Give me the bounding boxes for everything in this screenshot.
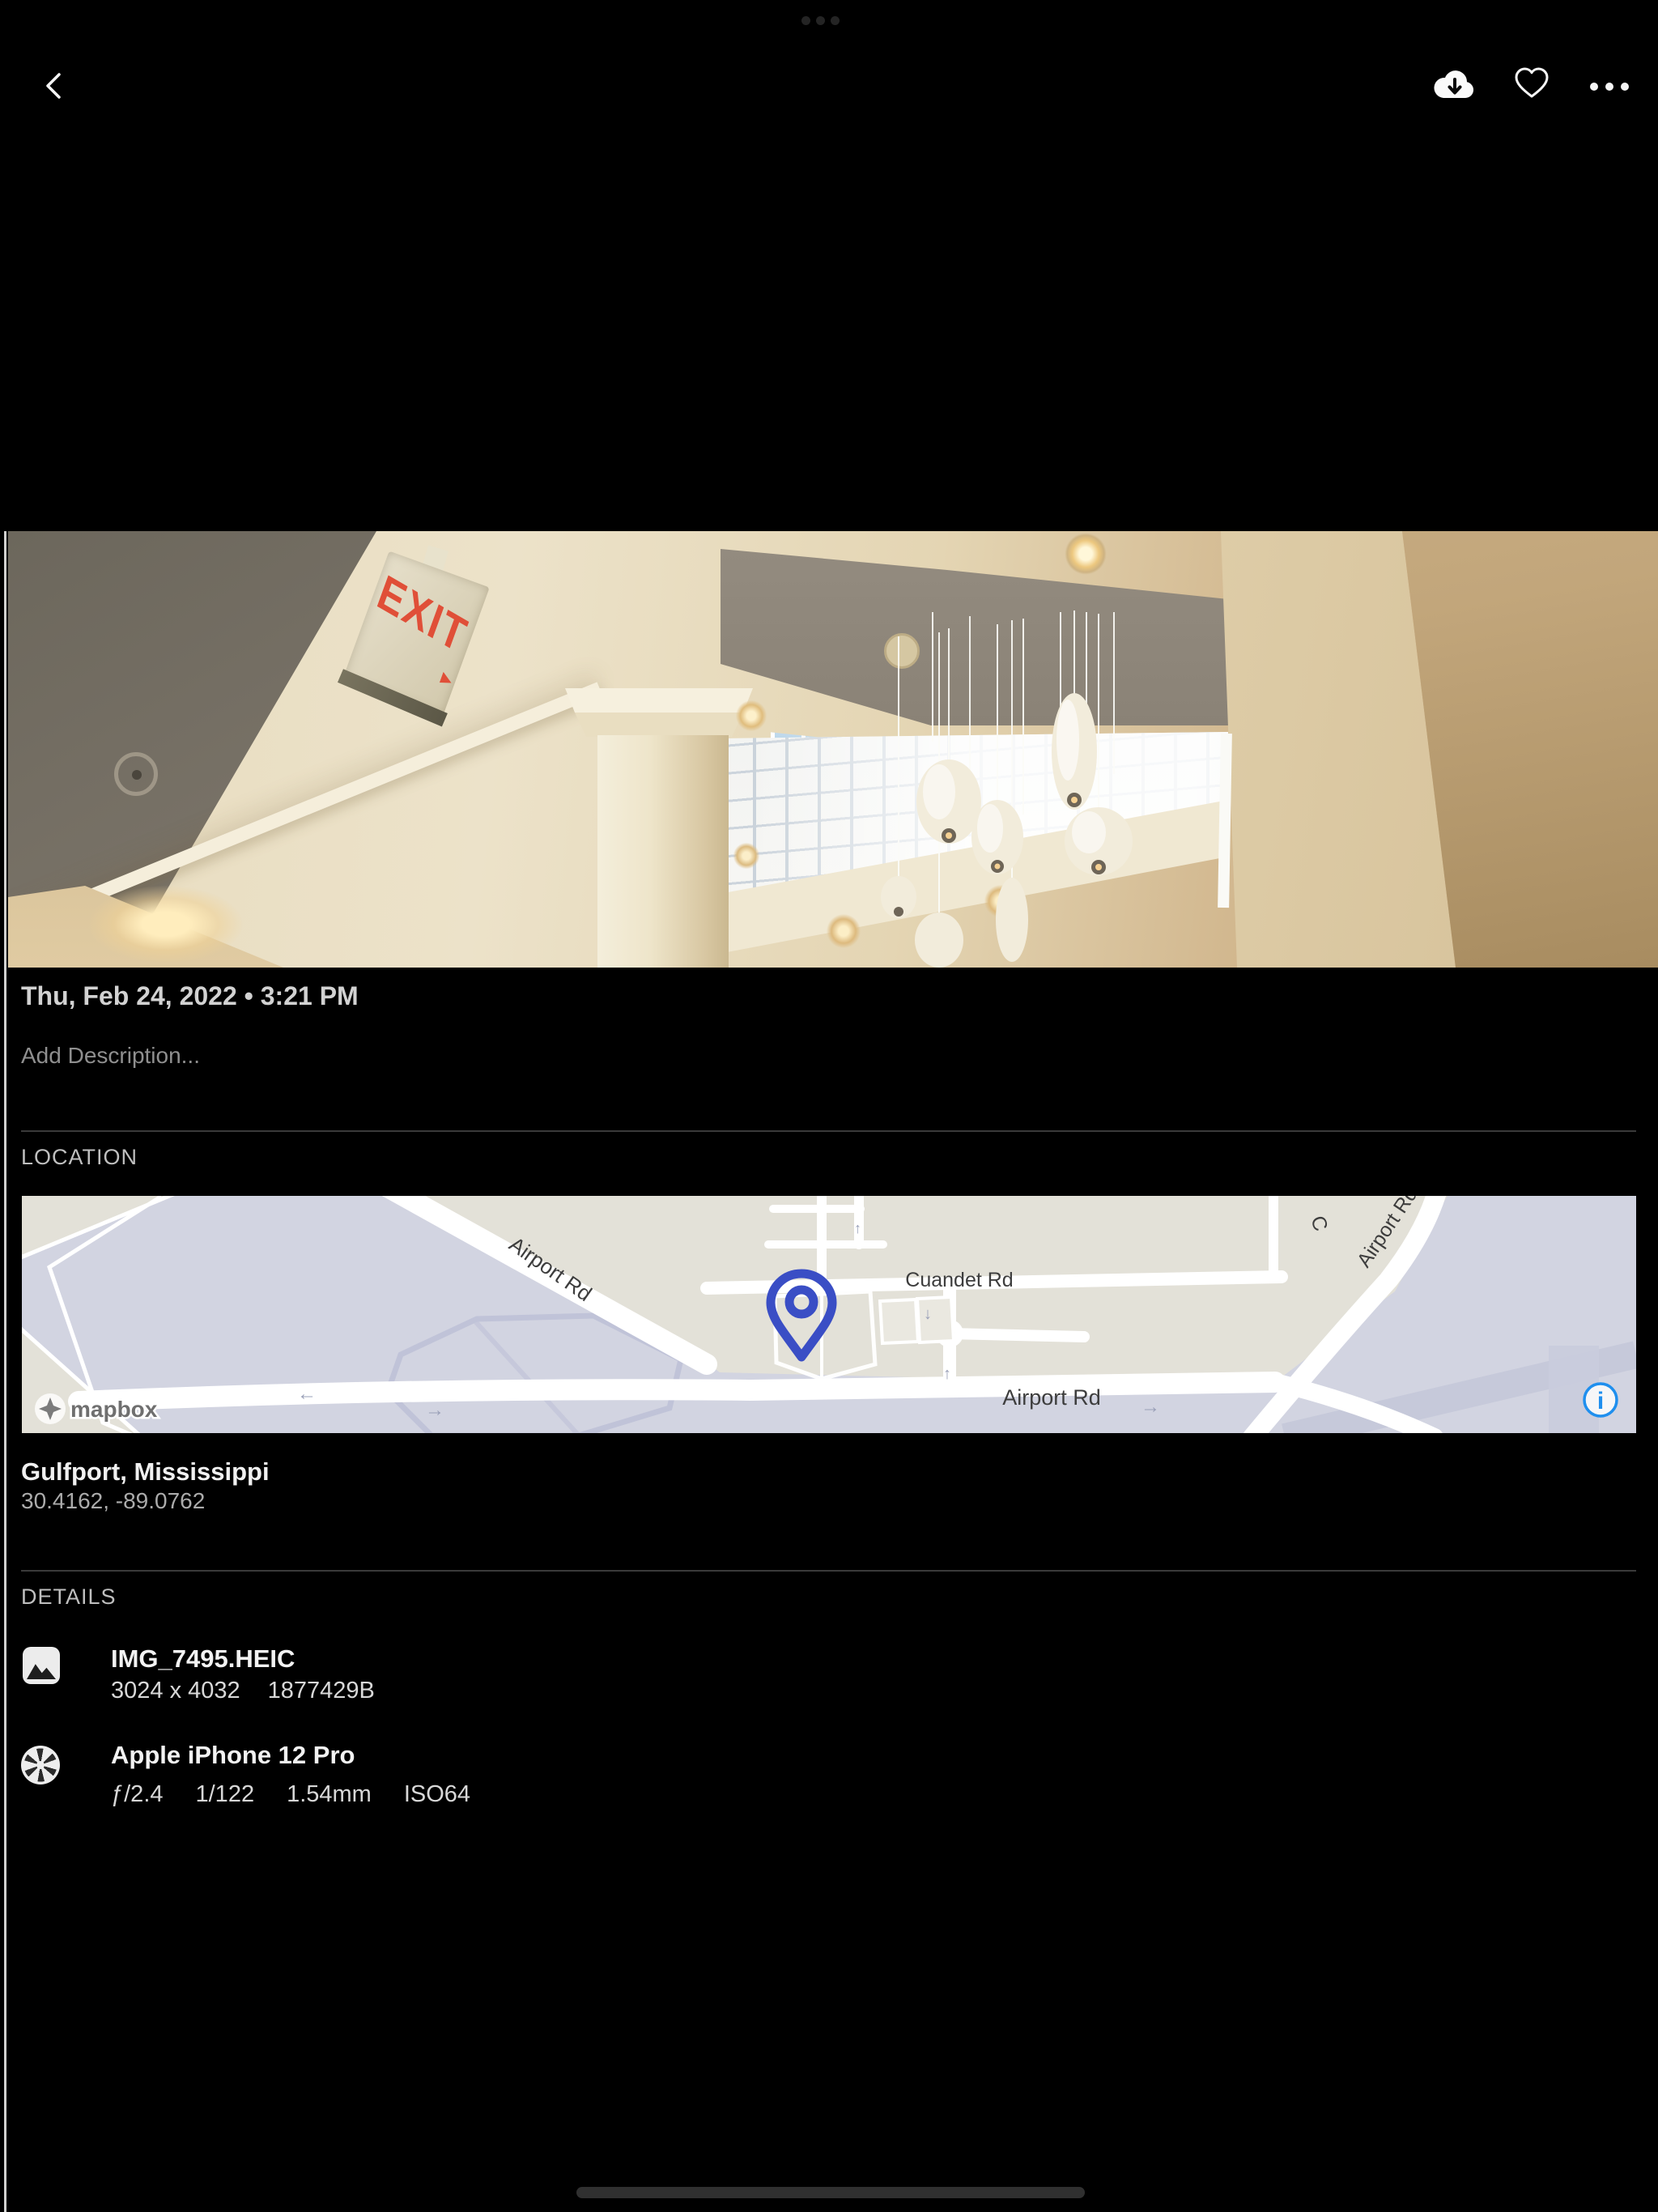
location-coordinates: 30.4162, -89.0762	[21, 1488, 205, 1514]
multitask-indicator-icon[interactable]	[801, 16, 840, 25]
favorite-button[interactable]	[1514, 68, 1550, 102]
camera-aperture: ƒ/2.4	[111, 1781, 164, 1808]
svg-text:↑: ↑	[854, 1220, 861, 1236]
svg-text:↑: ↑	[943, 1365, 951, 1383]
pendant-lamps-graphic	[8, 531, 1658, 968]
svg-text:→: →	[425, 1399, 444, 1421]
more-options-button[interactable]	[1588, 82, 1630, 91]
road-label-airport-main: Airport Rd	[1002, 1385, 1101, 1410]
back-button[interactable]	[36, 68, 74, 107]
description-input[interactable]: Add Description...	[21, 1043, 200, 1069]
download-button[interactable]	[1432, 69, 1477, 104]
divider	[21, 1130, 1636, 1132]
divider	[21, 1570, 1636, 1572]
aperture-icon	[21, 1746, 60, 1784]
adjacent-photo-edge	[4, 531, 6, 2212]
info-icon: i	[1597, 1388, 1604, 1414]
photo-datetime[interactable]: Thu, Feb 24, 2022 • 3:21 PM	[21, 981, 359, 1011]
file-size: 1877429B	[268, 1678, 375, 1704]
file-meta: 3024 x 4032 1877429B	[111, 1678, 402, 1704]
ellipsis-icon	[1590, 83, 1629, 91]
location-place[interactable]: Gulfport, Mississippi	[21, 1457, 270, 1487]
photo-preview[interactable]: EXIT ▸	[8, 531, 1658, 968]
camera-name: Apple iPhone 12 Pro	[111, 1741, 355, 1770]
home-indicator[interactable]	[576, 2187, 1085, 2198]
location-section-label: LOCATION	[21, 1145, 138, 1170]
mapbox-attribution[interactable]: mapbox	[35, 1393, 158, 1424]
camera-meta: ƒ/2.4 1/122 1.54mm ISO64	[111, 1781, 503, 1808]
chevron-left-icon	[37, 68, 73, 108]
details-section-label: DETAILS	[21, 1585, 117, 1610]
mapbox-wordmark: mapbox	[70, 1397, 158, 1422]
map-info-button[interactable]: i	[1584, 1384, 1617, 1416]
svg-text:→: →	[1141, 1396, 1160, 1418]
camera-focal: 1.54mm	[287, 1781, 372, 1808]
svg-text:↓: ↓	[924, 1305, 932, 1323]
file-dimensions: 3024 x 4032	[111, 1678, 240, 1704]
camera-shutter: 1/122	[196, 1781, 255, 1808]
svg-text:←: ←	[297, 1383, 317, 1405]
cloud-download-icon	[1432, 67, 1477, 107]
location-map[interactable]: ← → → ↑ ↓ ↑ Airport Rd Cuandet Rd Airpor…	[22, 1196, 1636, 1433]
road-label-cuandet: Cuandet Rd	[905, 1269, 1013, 1291]
camera-iso: ISO64	[404, 1781, 470, 1808]
file-name: IMG_7495.HEIC	[111, 1644, 295, 1674]
image-file-icon	[23, 1647, 60, 1684]
heart-icon	[1514, 67, 1550, 104]
